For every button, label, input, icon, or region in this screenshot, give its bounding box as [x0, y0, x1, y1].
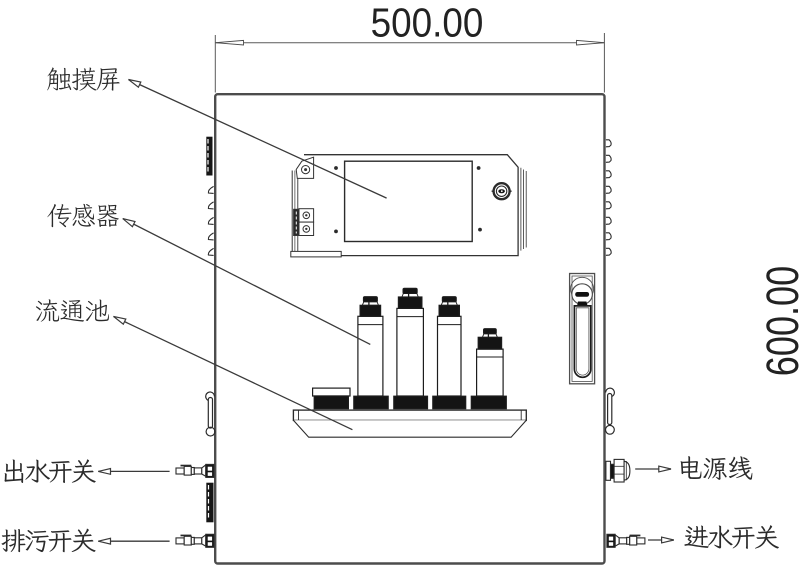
svg-text:500.00: 500.00	[371, 1, 484, 46]
svg-text:600.00: 600.00	[757, 266, 800, 376]
